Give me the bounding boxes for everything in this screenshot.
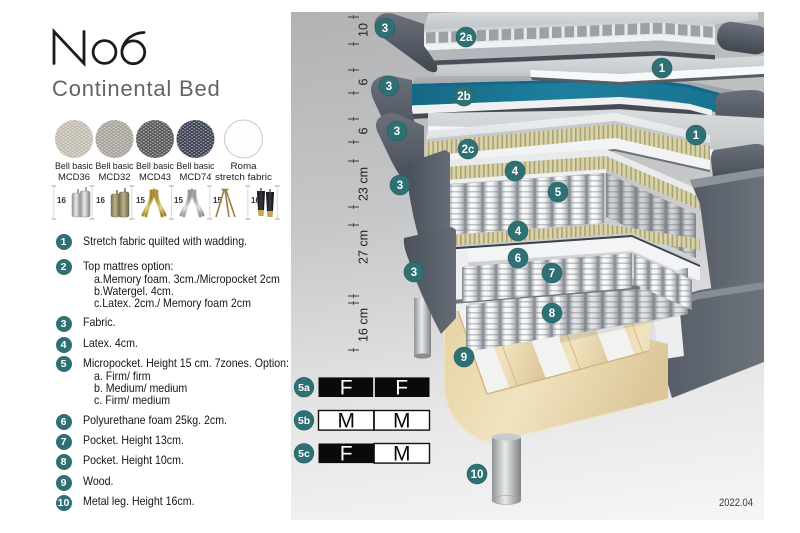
svg-text:16: 16 (96, 196, 105, 205)
svg-text:MCD32: MCD32 (99, 172, 131, 183)
svg-text:Bell basic: Bell basic (55, 161, 93, 172)
svg-text:MCD36: MCD36 (58, 172, 90, 183)
svg-text:16: 16 (57, 196, 66, 205)
svg-text:Bell basic: Bell basic (177, 161, 215, 172)
svg-text:MCD74: MCD74 (180, 172, 212, 183)
svg-text:Bell basic: Bell basic (96, 161, 134, 172)
svg-text:stretch fabric: stretch fabric (215, 172, 272, 183)
svg-text:Roma: Roma (231, 161, 258, 172)
svg-text:Bell basic: Bell basic (136, 161, 174, 172)
svg-text:15: 15 (136, 196, 145, 205)
svg-text:15: 15 (174, 196, 183, 205)
svg-text:MCD43: MCD43 (139, 172, 171, 183)
